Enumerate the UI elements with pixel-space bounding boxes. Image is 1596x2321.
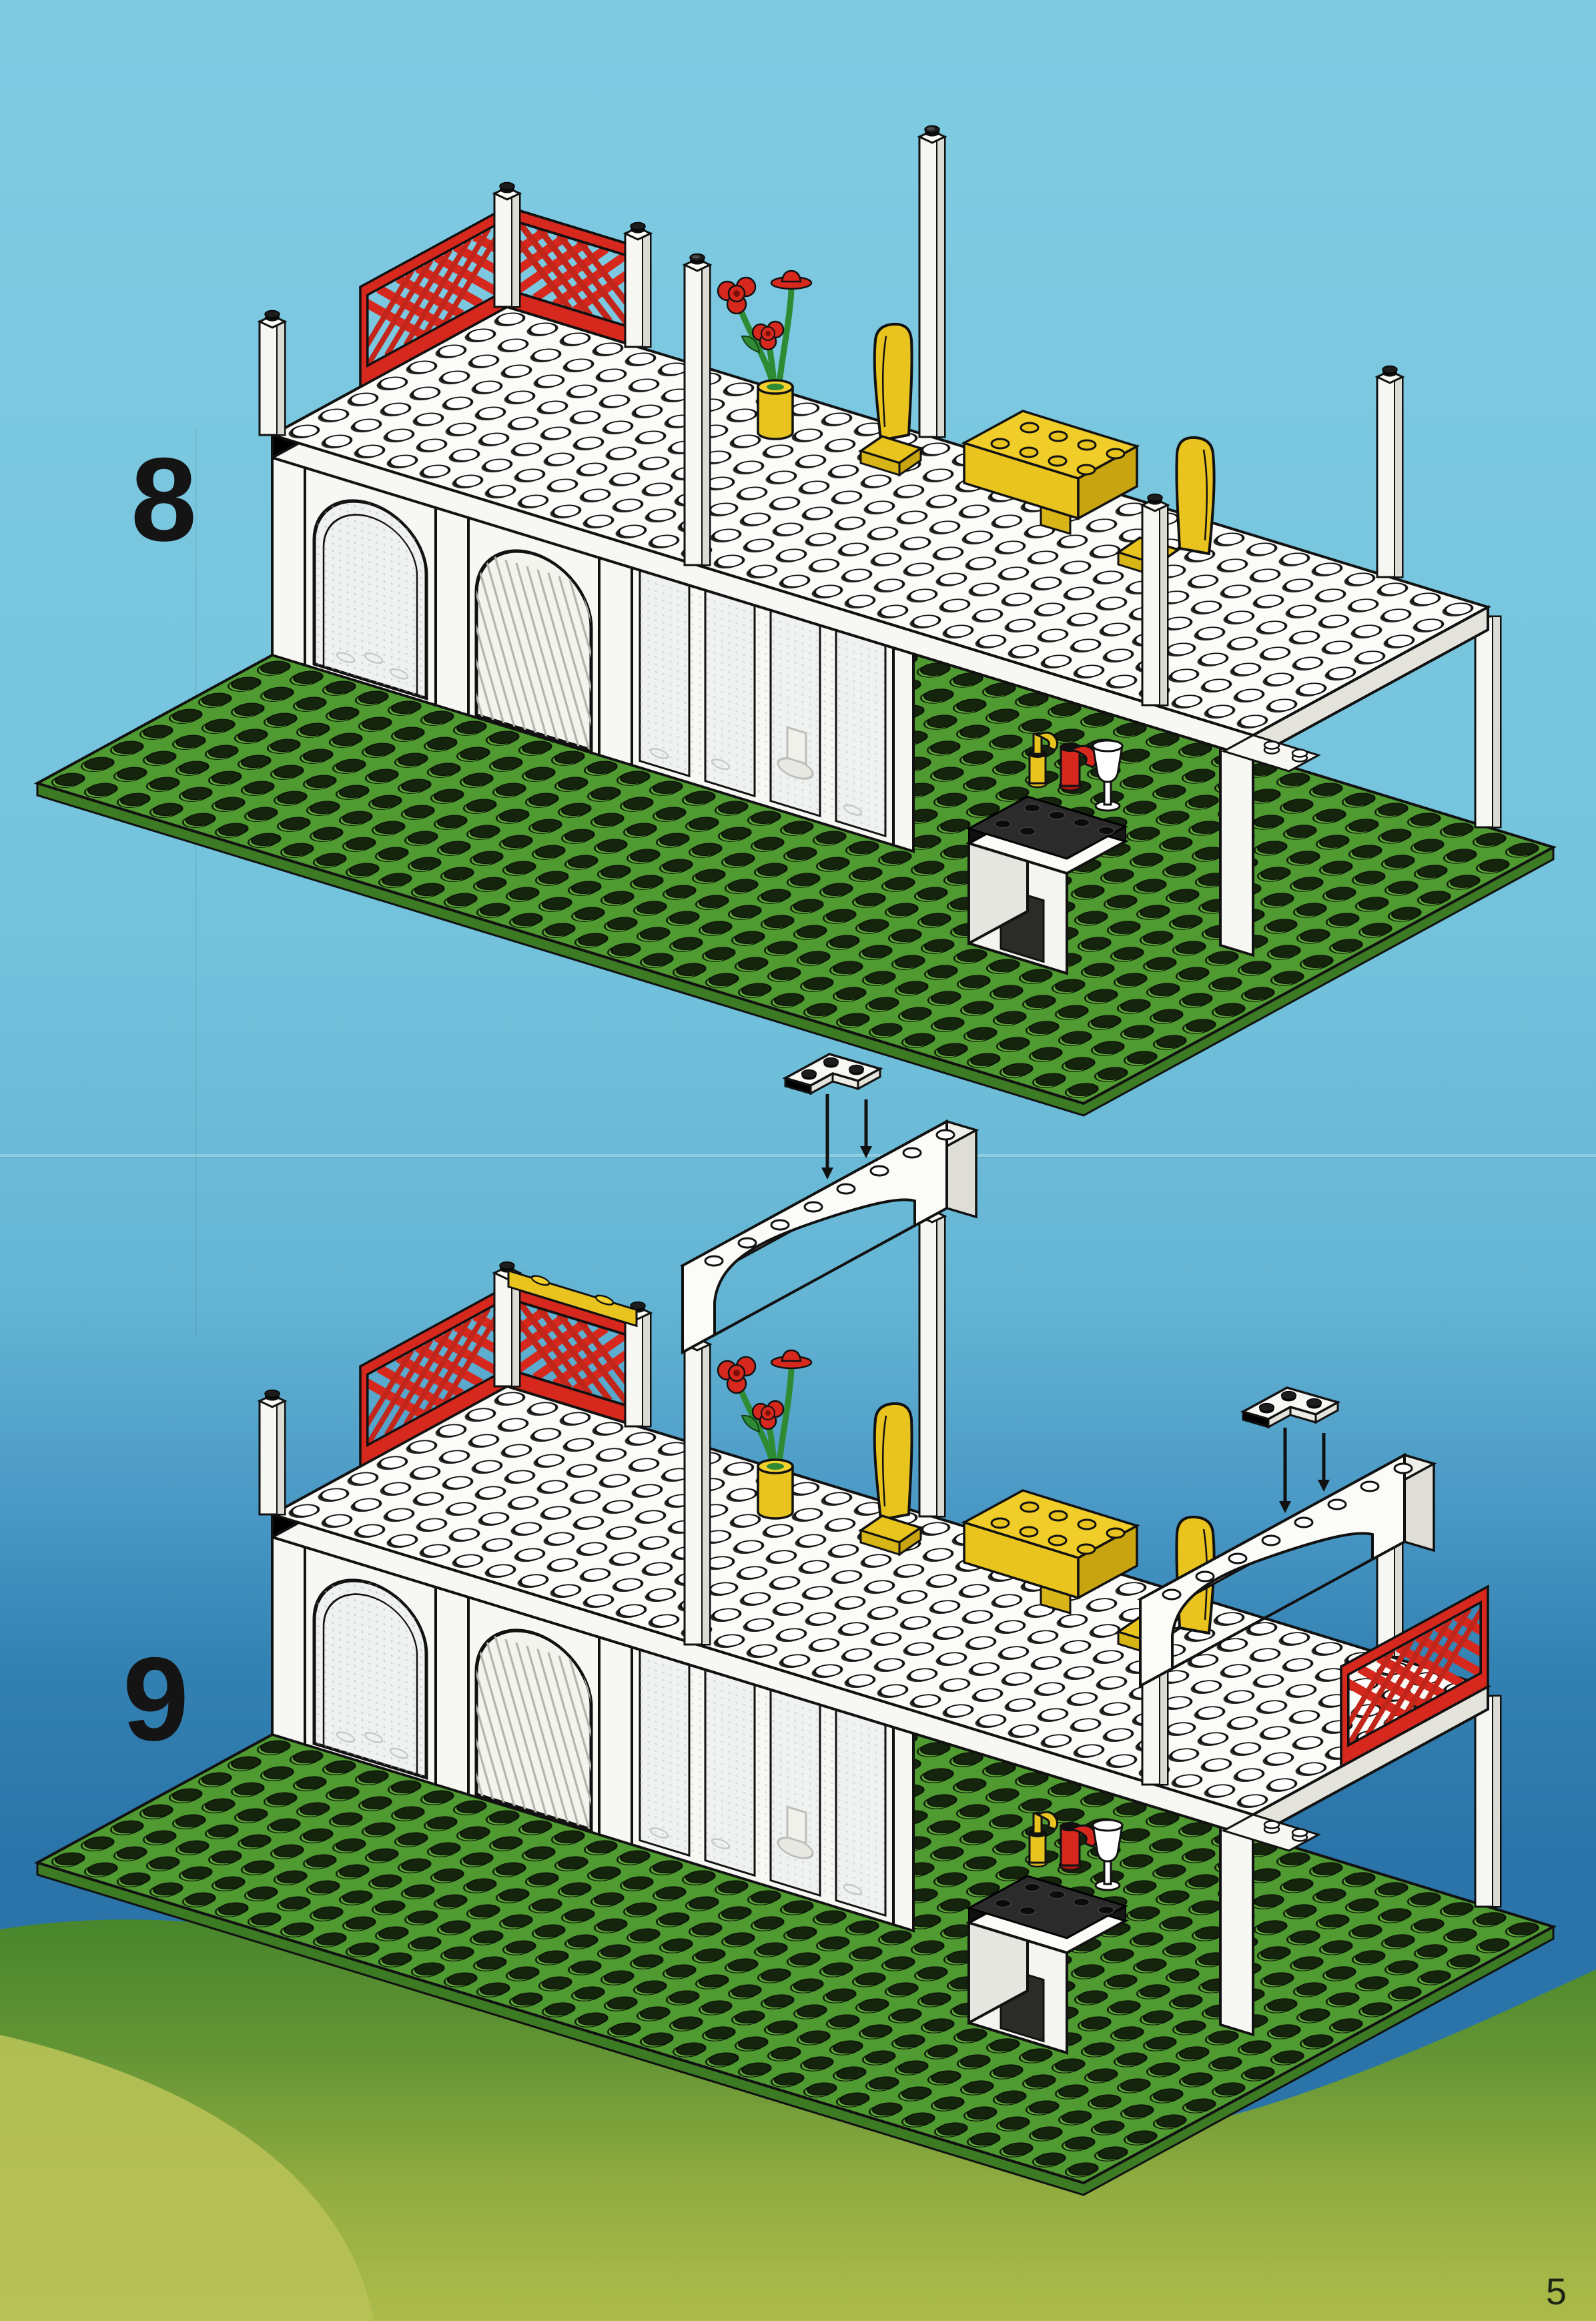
page-artwork [0,0,1596,2321]
fold-crease [0,1154,1596,1157]
step-number-9: 9 [123,1640,189,1759]
step-number-8: 8 [131,440,197,559]
fold-crease-shadow [0,1157,1596,1158]
instruction-page: 8 9 5 [0,0,1596,2321]
page-number: 5 [1546,2273,1567,2310]
